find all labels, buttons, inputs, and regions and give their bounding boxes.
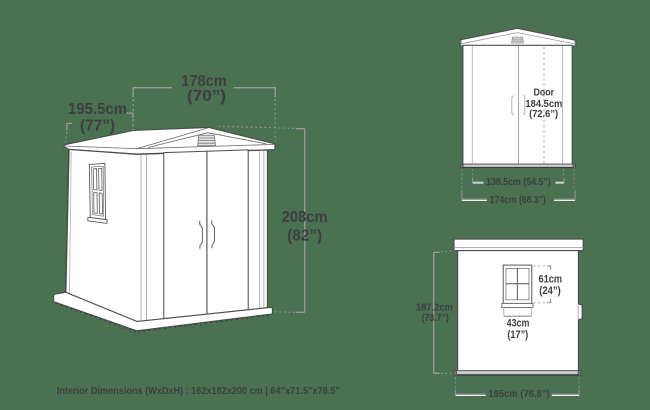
svg-text:Interior Dimensions (WxDxH) :: Interior Dimensions (WxDxH) : 162x182x20… xyxy=(57,385,340,397)
svg-text:195.5cm: 195.5cm xyxy=(68,101,127,118)
svg-text:(72.6”): (72.6”) xyxy=(529,109,558,120)
svg-text:(73.7”): (73.7”) xyxy=(422,313,449,324)
svg-text:195cm (76.8”): 195cm (76.8”) xyxy=(488,389,549,400)
svg-text:Door: Door xyxy=(534,87,555,98)
svg-text:187.2cm: 187.2cm xyxy=(416,302,453,313)
svg-text:(24”): (24”) xyxy=(539,285,561,297)
svg-text:(70”): (70”) xyxy=(187,88,226,105)
svg-text:138.5cm (54.5”): 138.5cm (54.5”) xyxy=(486,177,551,188)
svg-text:(82”): (82”) xyxy=(287,228,322,245)
svg-text:174cm (68.3”): 174cm (68.3”) xyxy=(490,195,546,206)
svg-text:61cm: 61cm xyxy=(539,274,563,286)
svg-text:(77”): (77”) xyxy=(80,118,115,135)
svg-text:(17”): (17”) xyxy=(507,329,528,341)
svg-text:208cm: 208cm xyxy=(282,209,328,226)
svg-text:43cm: 43cm xyxy=(507,317,530,329)
